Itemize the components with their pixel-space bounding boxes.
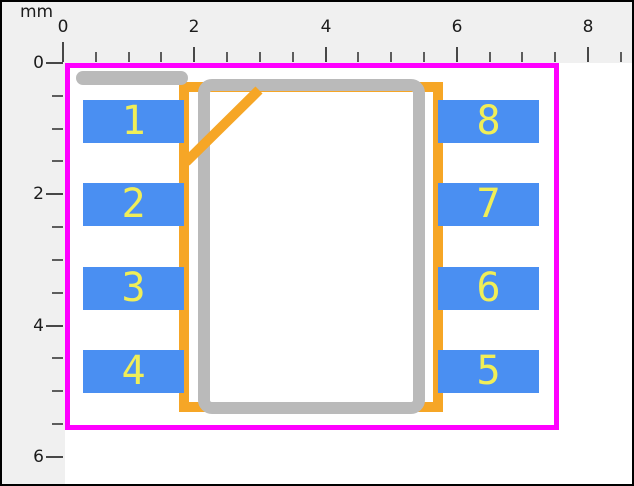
ruler-tick [521, 52, 523, 62]
ruler-tick [52, 160, 63, 162]
ruler-label: 0 [43, 17, 83, 37]
ruler-tick [52, 226, 63, 228]
ruler-tick [46, 193, 63, 195]
ruler-tick [52, 95, 63, 97]
ruler-tick [259, 52, 261, 62]
ruler-tick [620, 52, 622, 62]
ruler-tick [46, 62, 63, 64]
ruler-tick [52, 128, 63, 130]
ruler-tick [52, 259, 63, 261]
ruler-tick [423, 52, 425, 62]
ruler-tick [160, 52, 162, 62]
ruler-tick [357, 52, 359, 62]
ruler-tick [193, 47, 195, 62]
ruler-tick [226, 52, 228, 62]
ruler-tick [46, 325, 63, 327]
ruler-label: 6 [437, 17, 477, 37]
ruler-tick [52, 357, 63, 359]
ruler-tick [325, 47, 327, 62]
ruler-tick [456, 47, 458, 62]
ruler-tick [62, 42, 64, 62]
ruler-label: 0 [12, 53, 44, 73]
ruler-tick [554, 52, 556, 62]
ruler-tick [292, 52, 294, 62]
ruler-label: 2 [12, 184, 44, 204]
ruler-label: 2 [174, 17, 214, 37]
ruler-tick [46, 456, 63, 458]
ruler-label: 6 [12, 447, 44, 467]
ruler-tick [52, 423, 63, 425]
ruler-label: 4 [306, 17, 346, 37]
ruler-tick [587, 47, 589, 62]
ruler-label: 8 [568, 17, 608, 37]
footprint-viewer: mm 02468 0246 1234 8765 [0, 0, 634, 486]
ruler-label: 4 [12, 316, 44, 336]
ruler-tick [52, 390, 63, 392]
ruler-tick [128, 52, 130, 62]
ruler-tick [95, 52, 97, 62]
rulers: mm 02468 0246 [0, 0, 634, 486]
ruler-tick [390, 52, 392, 62]
ruler-tick [52, 292, 63, 294]
ruler-tick [489, 52, 491, 62]
